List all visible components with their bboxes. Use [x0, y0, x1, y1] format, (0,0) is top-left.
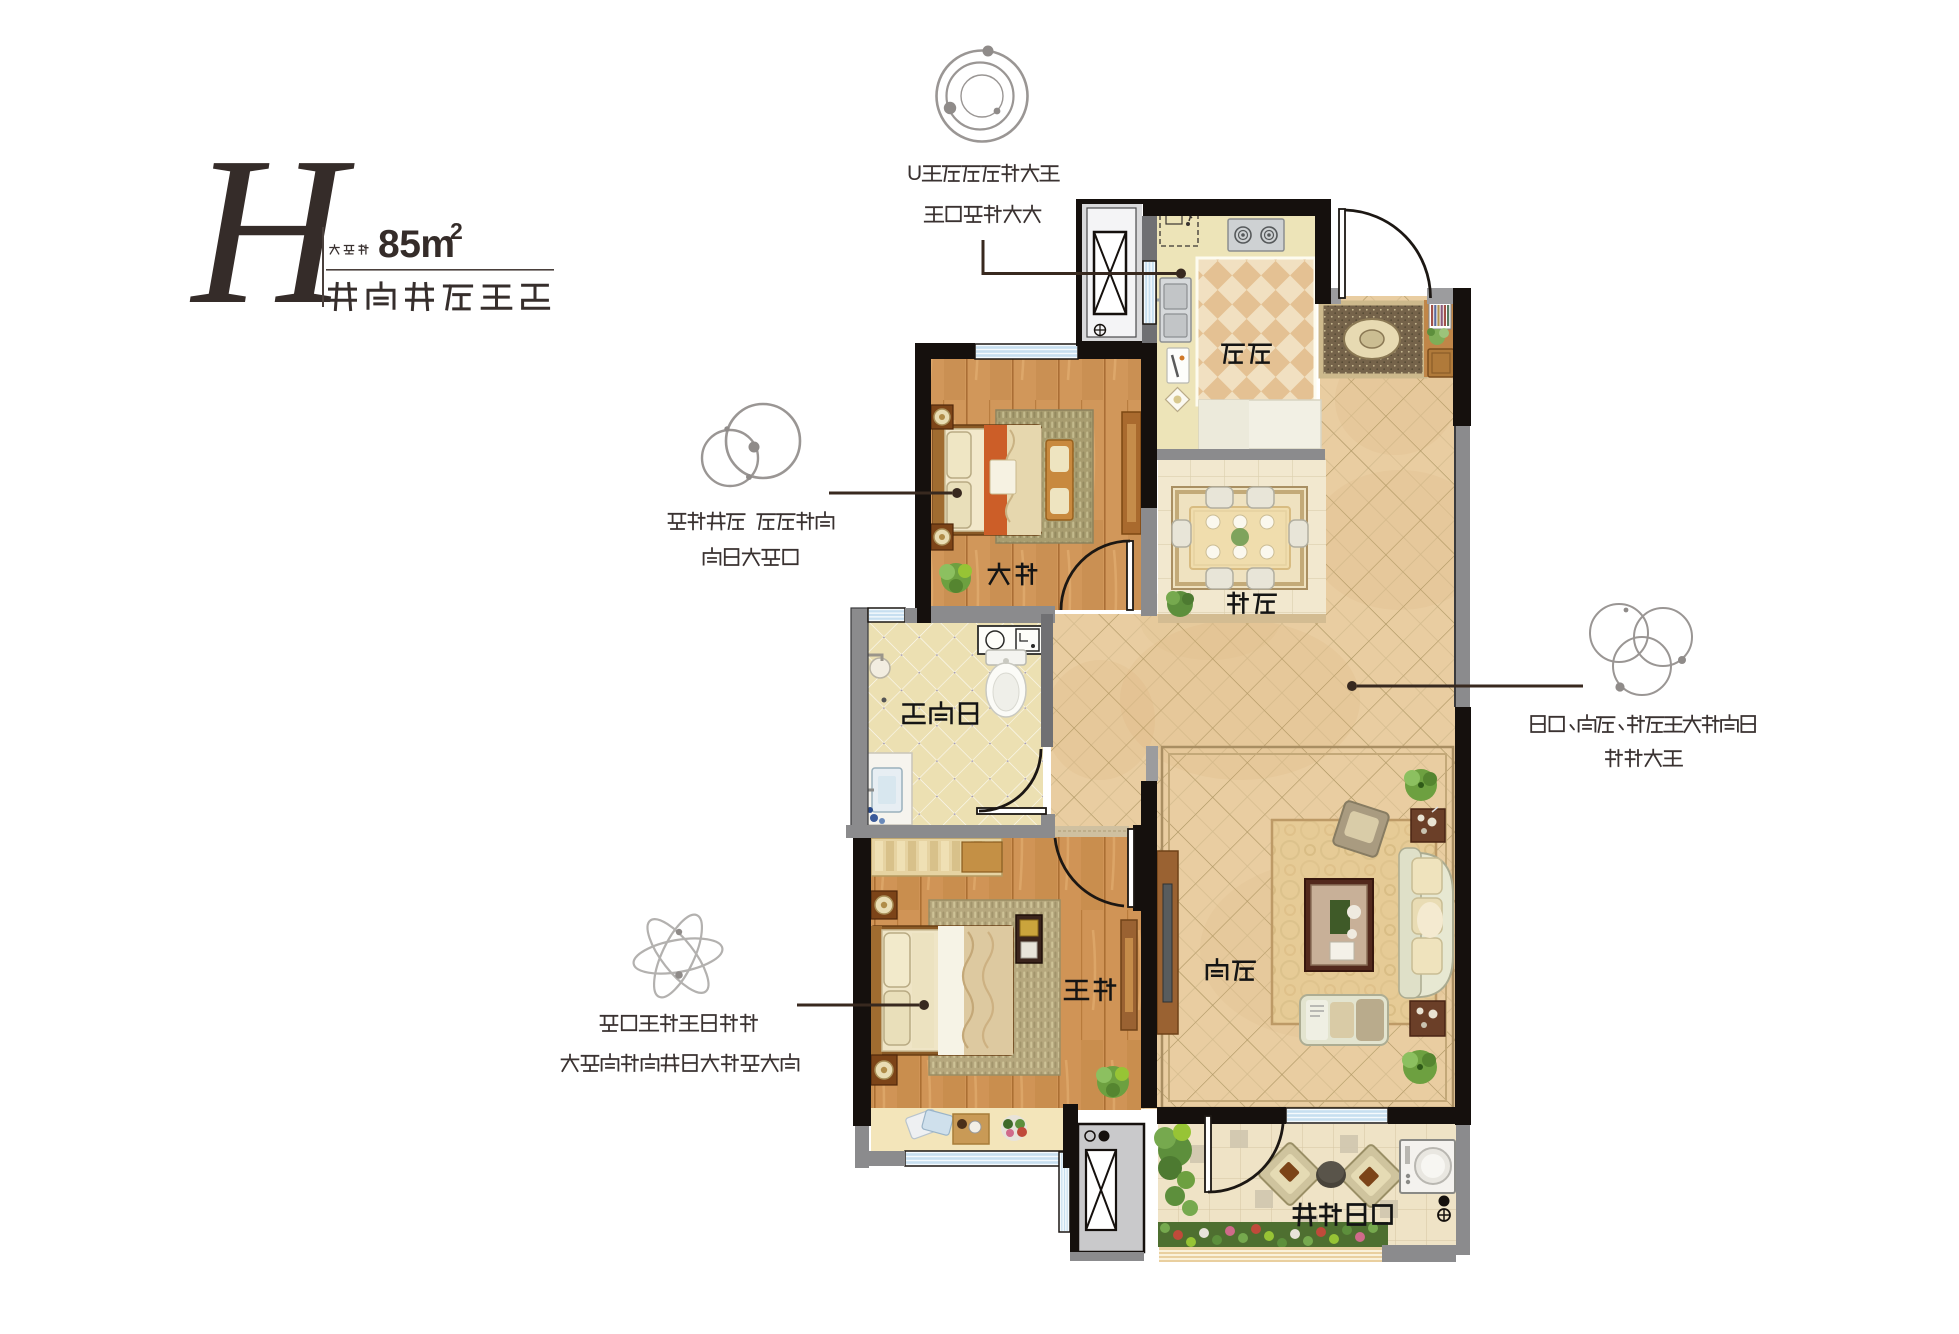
svg-text:85m: 85m [378, 223, 455, 266]
svg-text:U: U [907, 162, 922, 185]
svg-text:2: 2 [450, 218, 463, 244]
svg-text:H: H [189, 113, 355, 348]
